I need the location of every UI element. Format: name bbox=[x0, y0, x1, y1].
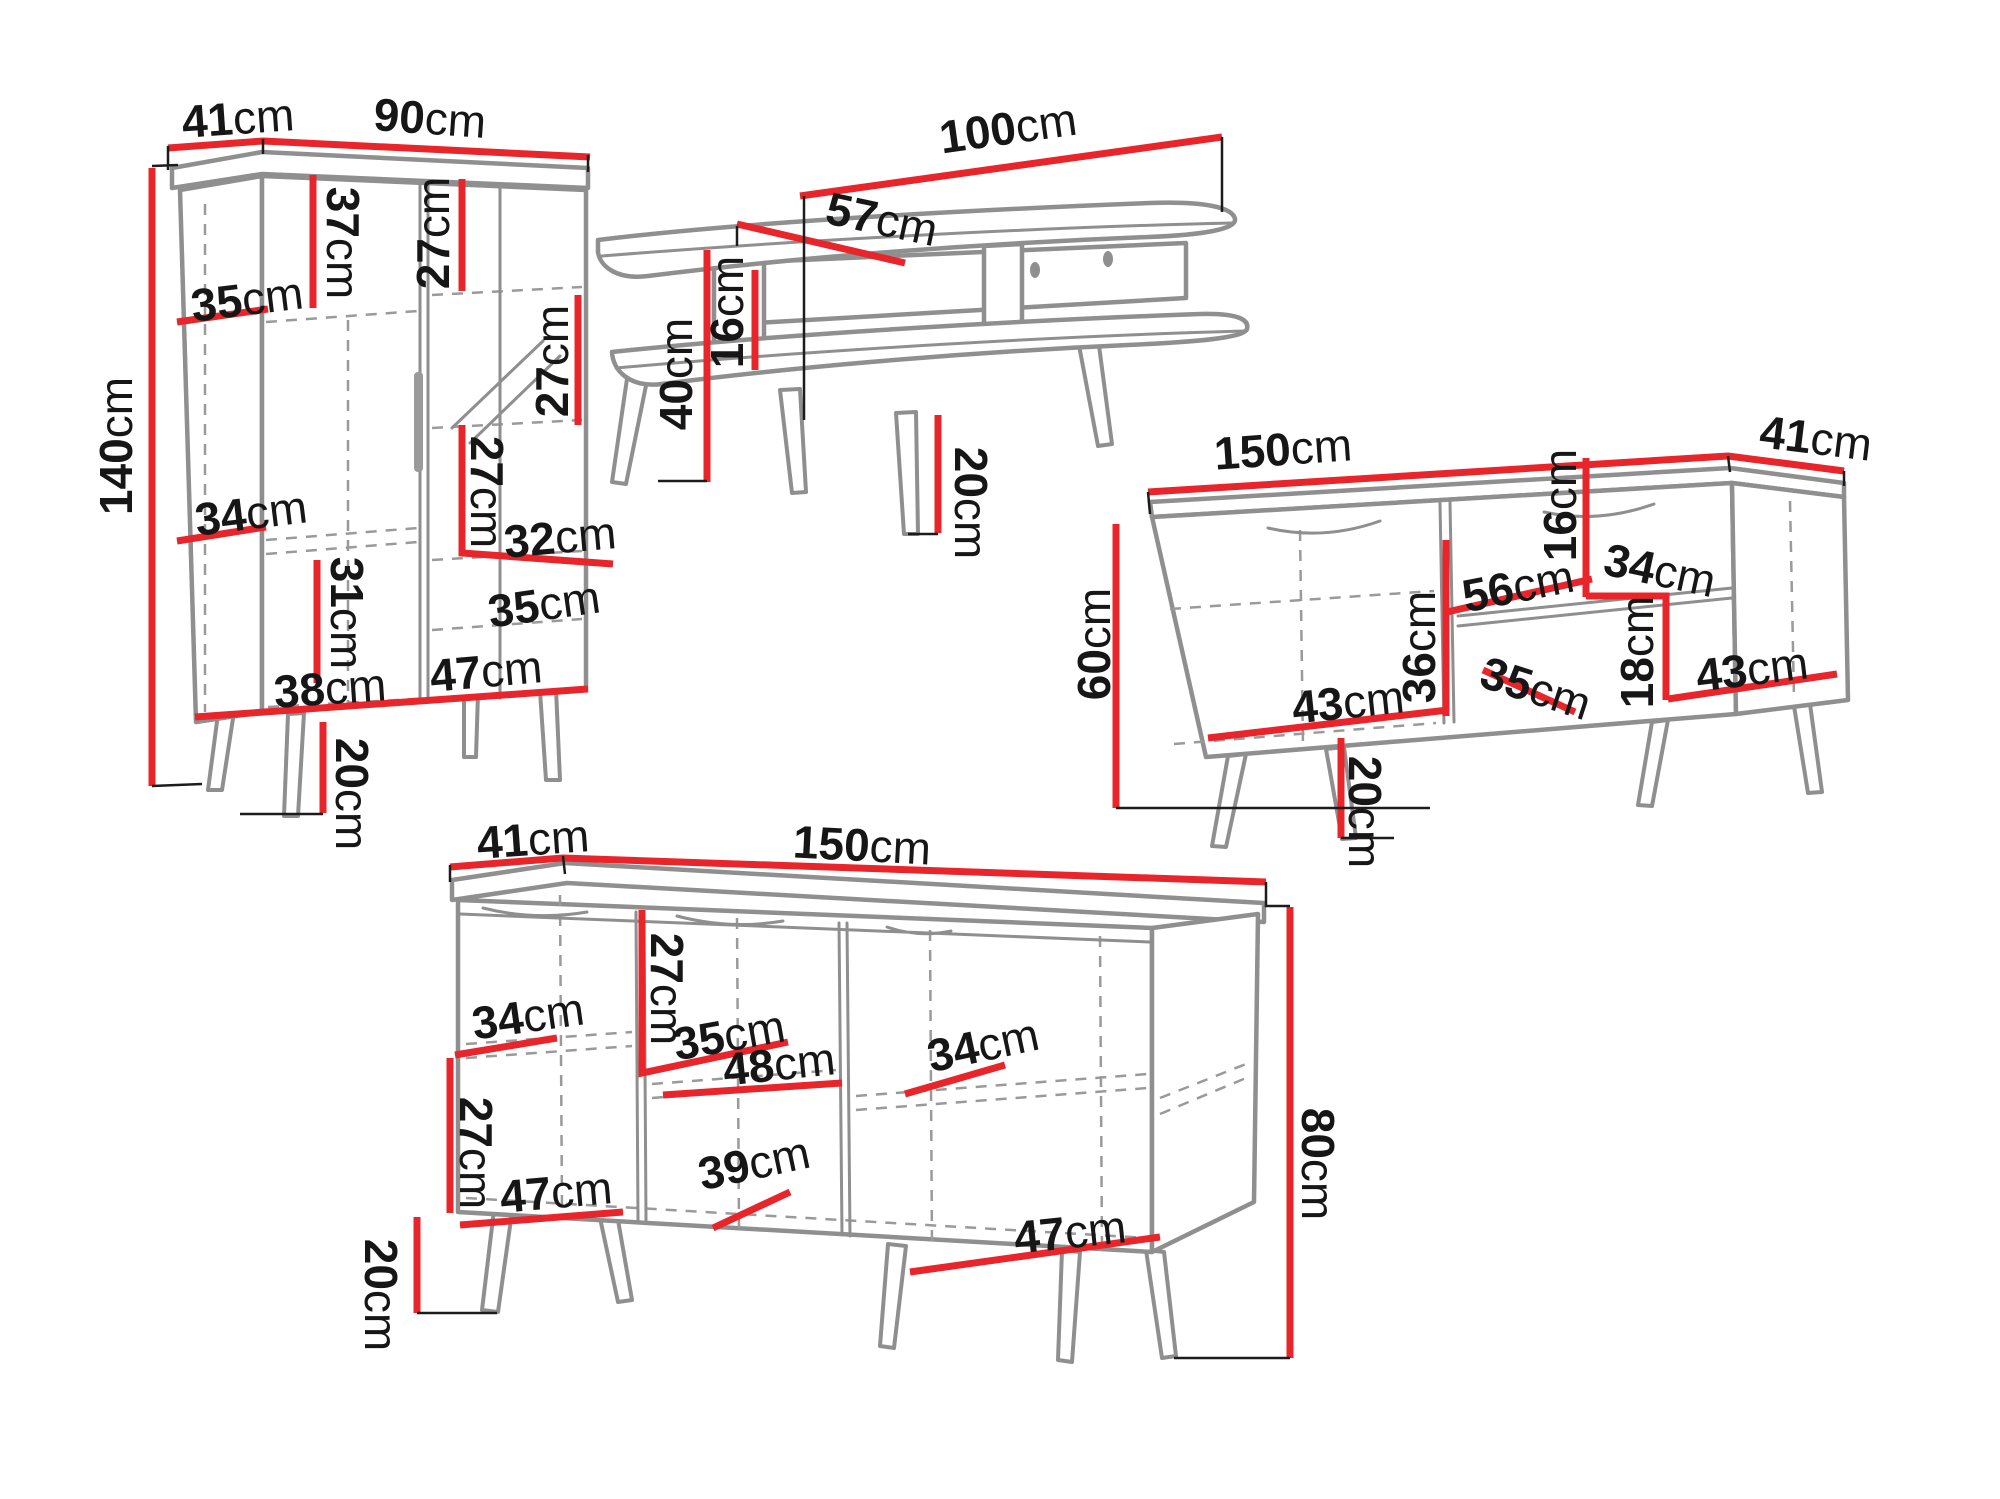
dim-wardrobe-upper-shelf-height: 37cm bbox=[317, 187, 369, 300]
wardrobe-door-handle bbox=[414, 372, 423, 472]
dim-sideboard-top-depth: 41cm bbox=[475, 809, 591, 869]
dim-wardrobe-total-height: 140cm bbox=[90, 377, 142, 515]
wardrobe-left-side bbox=[180, 176, 262, 722]
diagram-canvas: 41cm 90cm 140cm 37cm 27cm 35cm 27cm 34cm… bbox=[0, 0, 2000, 1499]
sideboard-diagram: 41cm 150cm 27cm 34cm 35cm 48cm 34cm 27cm… bbox=[355, 809, 1344, 1362]
dim-tv-lower-niche-height: 18cm bbox=[1611, 596, 1663, 709]
tv-stand-diagram: 150cm 41cm 60cm 16cm 56cm 34cm 36cm 35cm… bbox=[1068, 405, 1875, 868]
dim-tv-total-height: 60cm bbox=[1068, 588, 1120, 701]
dim-tv-niche-height: 16cm bbox=[1534, 449, 1586, 562]
dim-sideboard-leg-height: 20cm bbox=[355, 1239, 407, 1352]
dim-tv-top-width: 150cm bbox=[1212, 418, 1353, 480]
sideboard-right-side bbox=[1152, 914, 1258, 1252]
dim-coffee-shelf-gap-height: 16cm bbox=[701, 256, 753, 369]
coffee-table-cable-hole bbox=[1030, 262, 1040, 278]
dim-wardrobe-top-depth: 41cm bbox=[180, 88, 296, 148]
dim-tv-leg-height: 20cm bbox=[1339, 756, 1391, 869]
dim-wardrobe-leg-height: 20cm bbox=[326, 738, 378, 851]
wardrobe-cabinet-diagram: 41cm 90cm 140cm 37cm 27cm 35cm 27cm 34cm… bbox=[90, 88, 618, 850]
dim-wardrobe-top-width: 90cm bbox=[372, 88, 488, 148]
dim-coffee-leg-height: 20cm bbox=[945, 447, 997, 560]
dim-coffee-total-height: 40cm bbox=[650, 318, 702, 431]
dim-coffee-top-length: 100cm bbox=[936, 93, 1080, 164]
dim-wardrobe-right-shelf-width: 32cm bbox=[502, 506, 619, 568]
dim-sideboard-lower-shelf-height: 27cm bbox=[450, 1097, 502, 1210]
dim-sideboard-body-height: 80cm bbox=[1292, 1108, 1344, 1221]
dim-wardrobe-glass-shelf-height: 27cm bbox=[526, 305, 578, 418]
dim-wardrobe-bottom-right-width: 47cm bbox=[428, 640, 545, 702]
furniture-dimension-diagram: 41cm 90cm 140cm 37cm 27cm 35cm 27cm 34cm… bbox=[0, 0, 2000, 1499]
dim-sideboard-top-width: 150cm bbox=[792, 815, 933, 874]
coffee-table-cable-hole-2 bbox=[1103, 251, 1113, 267]
dim-wardrobe-upper-right-shelf-height: 27cm bbox=[407, 177, 459, 290]
dim-sideboard-left-door-width: 47cm bbox=[498, 1161, 615, 1223]
dim-wardrobe-lower-shelf-height: 31cm bbox=[321, 557, 373, 670]
dim-sideboard-right-door-width: 47cm bbox=[1011, 1200, 1128, 1263]
dim-wardrobe-bottom-left-width: 38cm bbox=[272, 658, 388, 718]
